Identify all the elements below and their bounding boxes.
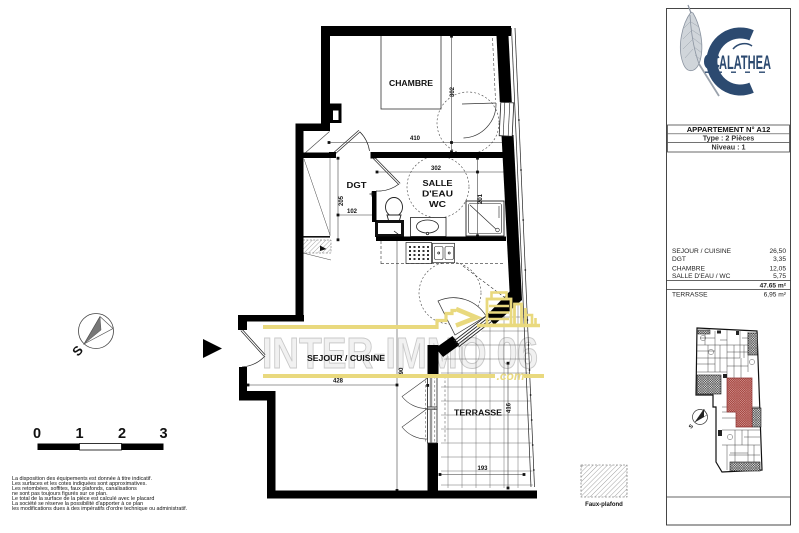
svg-text:SEJOUR / CUISINE: SEJOUR / CUISINE bbox=[672, 248, 732, 255]
svg-text:6,95 m²: 6,95 m² bbox=[764, 292, 787, 299]
svg-text:.com: .com bbox=[497, 369, 525, 383]
svg-text:2: 2 bbox=[118, 426, 126, 442]
svg-text:APPARTEMENT N° A12: APPARTEMENT N° A12 bbox=[687, 125, 771, 134]
svg-text:SALLE D'EAU / WC: SALLE D'EAU / WC bbox=[672, 273, 731, 280]
svg-text:47.65 m²: 47.65 m² bbox=[760, 283, 787, 290]
svg-text:Type : 2 Pièces: Type : 2 Pièces bbox=[703, 134, 754, 143]
svg-text:TERRASSE: TERRASSE bbox=[672, 292, 708, 299]
svg-text:1: 1 bbox=[75, 426, 83, 442]
svg-text:302: 302 bbox=[431, 166, 442, 172]
svg-text:3: 3 bbox=[159, 426, 167, 442]
svg-text:205: 205 bbox=[339, 195, 345, 206]
svg-text:3,35: 3,35 bbox=[773, 256, 786, 263]
svg-text:D'EAU: D'EAU bbox=[422, 189, 453, 199]
svg-text:428: 428 bbox=[333, 379, 344, 385]
svg-text:302: 302 bbox=[450, 86, 456, 97]
svg-text:SEJOUR / CUISINE: SEJOUR / CUISINE bbox=[307, 353, 385, 363]
svg-text:102: 102 bbox=[347, 209, 358, 215]
svg-text:410: 410 bbox=[410, 136, 421, 142]
svg-text:193: 193 bbox=[477, 466, 488, 472]
svg-text:CHAMBRE: CHAMBRE bbox=[389, 78, 433, 88]
svg-text:416: 416 bbox=[507, 402, 513, 413]
svg-text:5,75: 5,75 bbox=[773, 273, 786, 280]
svg-text:WC: WC bbox=[429, 199, 446, 209]
svg-text:90: 90 bbox=[399, 367, 405, 374]
svg-text:les modifications dues à des i: les modifications dues à des impératifs … bbox=[12, 506, 187, 512]
svg-text:12,05: 12,05 bbox=[769, 266, 786, 273]
svg-text:26,50: 26,50 bbox=[769, 248, 786, 255]
svg-text:CHAMBRE: CHAMBRE bbox=[672, 266, 706, 273]
svg-text:Niveau : 1: Niveau : 1 bbox=[712, 143, 746, 152]
svg-text:Faux-plafond: Faux-plafond bbox=[585, 502, 623, 508]
svg-text:TERRASSE: TERRASSE bbox=[454, 408, 502, 418]
svg-text:ALATHEA: ALATHEA bbox=[719, 53, 771, 74]
svg-text:201: 201 bbox=[478, 193, 484, 204]
svg-text:DGT: DGT bbox=[672, 256, 686, 263]
svg-text:SALLE: SALLE bbox=[423, 178, 453, 188]
svg-text:DGT: DGT bbox=[347, 180, 368, 190]
svg-text:0: 0 bbox=[33, 426, 41, 442]
